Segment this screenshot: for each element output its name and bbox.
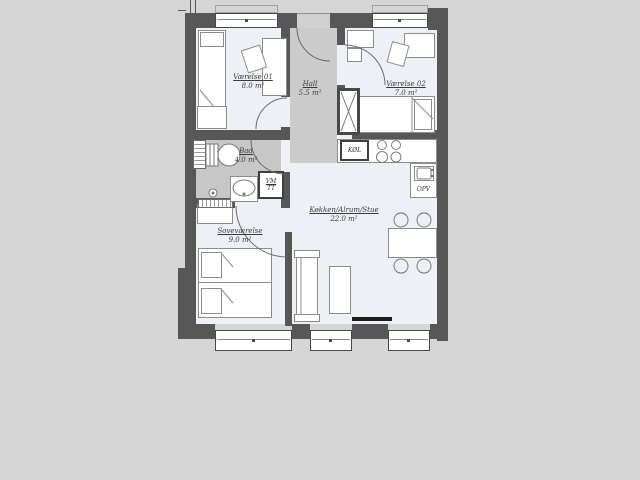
cabinet xyxy=(347,48,362,62)
room-name: Bad xyxy=(196,147,296,156)
entry-door-opening xyxy=(297,13,330,28)
washer-label: VM xyxy=(266,178,276,185)
kitchen-sink xyxy=(414,166,434,181)
dishwasher-label: OPV xyxy=(417,186,430,193)
washer-dryer: VM TT xyxy=(258,171,284,199)
pillow xyxy=(200,32,224,47)
room-name: Hall xyxy=(260,80,360,89)
room-area: 9.0 m² xyxy=(190,236,290,245)
room-name: Køkken/Alrum/Stue xyxy=(284,206,404,215)
fridge-label: KØL xyxy=(348,147,361,154)
wall xyxy=(330,13,372,28)
room-name: Værelse 02 xyxy=(356,80,456,89)
pillow xyxy=(201,288,222,314)
room-area: 4.0 m² xyxy=(196,156,296,165)
bed-divider xyxy=(198,282,272,283)
room-label-koekken: Køkken/Alrum/Stue 22.0 m² xyxy=(284,206,404,224)
wall-stub xyxy=(190,0,191,13)
wall xyxy=(185,130,290,140)
floor-plan-canvas: KØL OPV VM TT xyxy=(0,0,640,480)
wall xyxy=(430,324,448,339)
room-area: 7.0 m² xyxy=(356,89,456,98)
sofa-armrest xyxy=(294,314,320,322)
wall xyxy=(285,232,292,326)
wall xyxy=(437,13,448,341)
wall-stub xyxy=(178,10,186,11)
window xyxy=(388,330,430,351)
room-area: 22.0 m² xyxy=(284,215,404,224)
window-sill xyxy=(215,5,278,13)
wall xyxy=(292,324,310,339)
window-sill xyxy=(372,5,428,13)
wall-stub xyxy=(195,0,196,13)
room-label-bad: Bad 4.0 m² xyxy=(196,147,296,165)
bathroom-sink-counter xyxy=(230,176,258,202)
pillow xyxy=(414,99,432,130)
room-area: 5.5 m² xyxy=(260,89,360,98)
radiator xyxy=(198,199,233,208)
room-label-vaerelse02: Værelse 02 7.0 m² xyxy=(356,80,456,98)
window xyxy=(215,13,278,28)
room-label-hall: Hall 5.5 m² xyxy=(260,80,360,98)
pillow xyxy=(201,252,222,278)
wall xyxy=(337,28,345,45)
room-label-sovevaerelse: Soveværelse 9.0 m² xyxy=(190,227,290,245)
window xyxy=(372,13,428,28)
wall xyxy=(278,13,297,28)
wall xyxy=(178,324,215,339)
dishwasher: OPV xyxy=(410,183,437,195)
room-name: Soveværelse xyxy=(190,227,290,236)
coffee-table xyxy=(329,266,351,314)
tv xyxy=(352,317,392,321)
cabinet xyxy=(347,30,374,48)
sofa xyxy=(296,257,318,315)
dryer-label: TT xyxy=(267,185,275,192)
window xyxy=(215,330,292,351)
fridge: KØL xyxy=(340,140,369,161)
dining-table xyxy=(388,228,437,258)
wall xyxy=(352,324,388,339)
window xyxy=(310,330,352,351)
dresser xyxy=(197,106,227,129)
